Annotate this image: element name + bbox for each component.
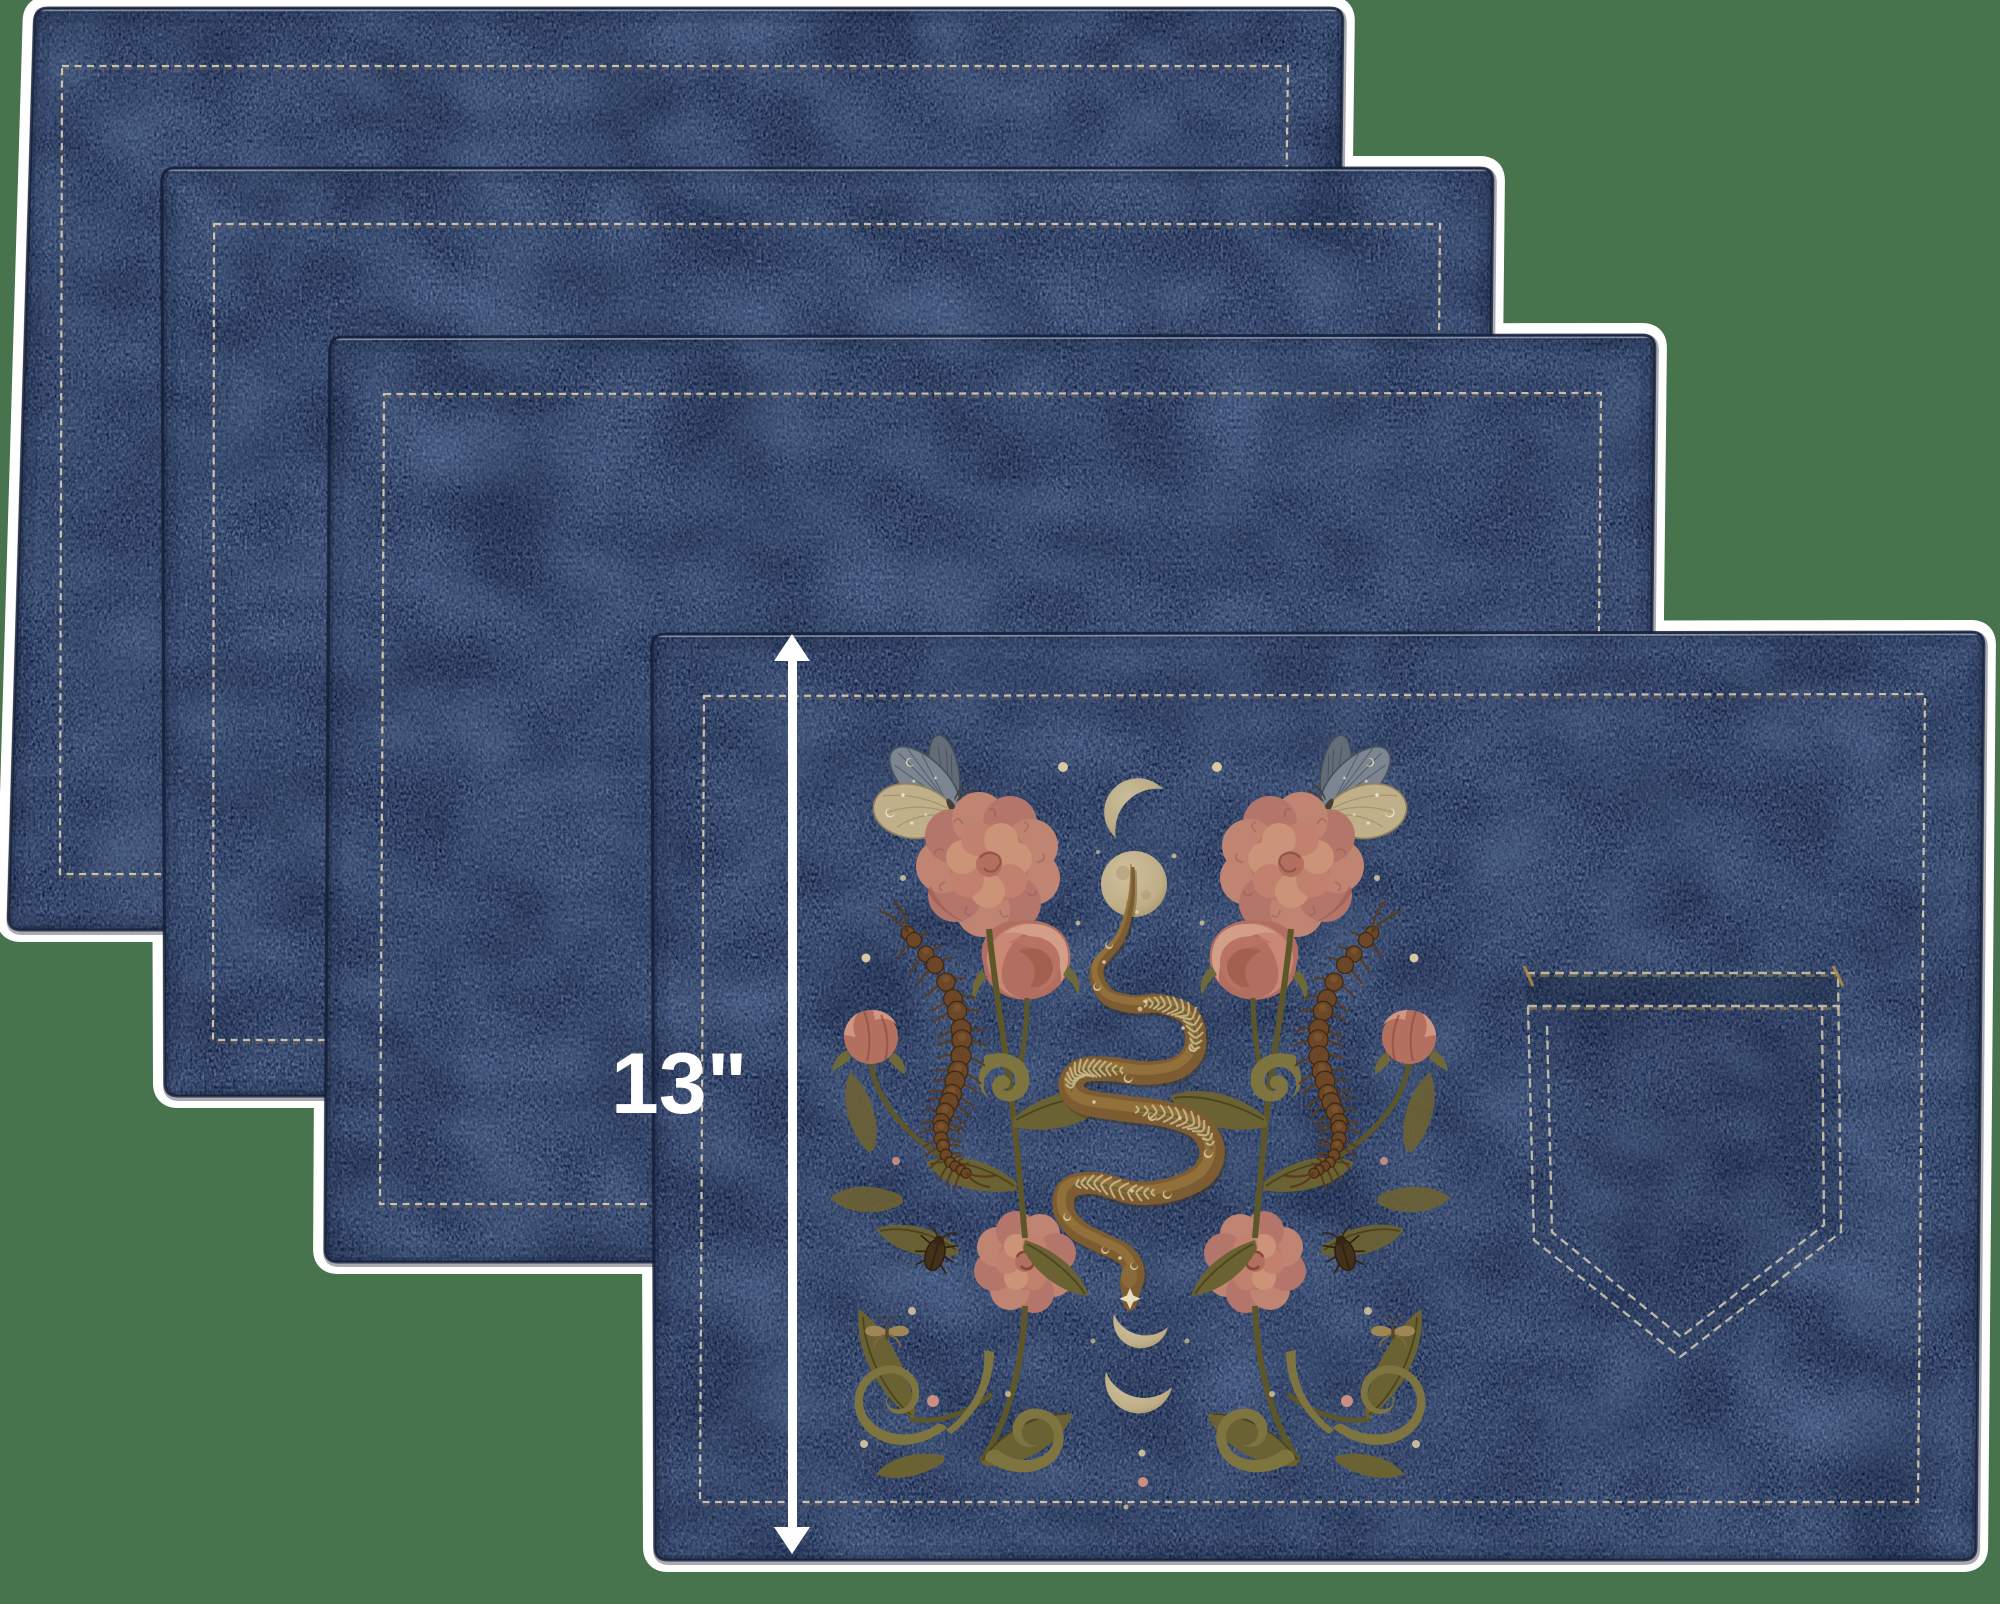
svg-text:13": 13" xyxy=(611,1036,747,1132)
